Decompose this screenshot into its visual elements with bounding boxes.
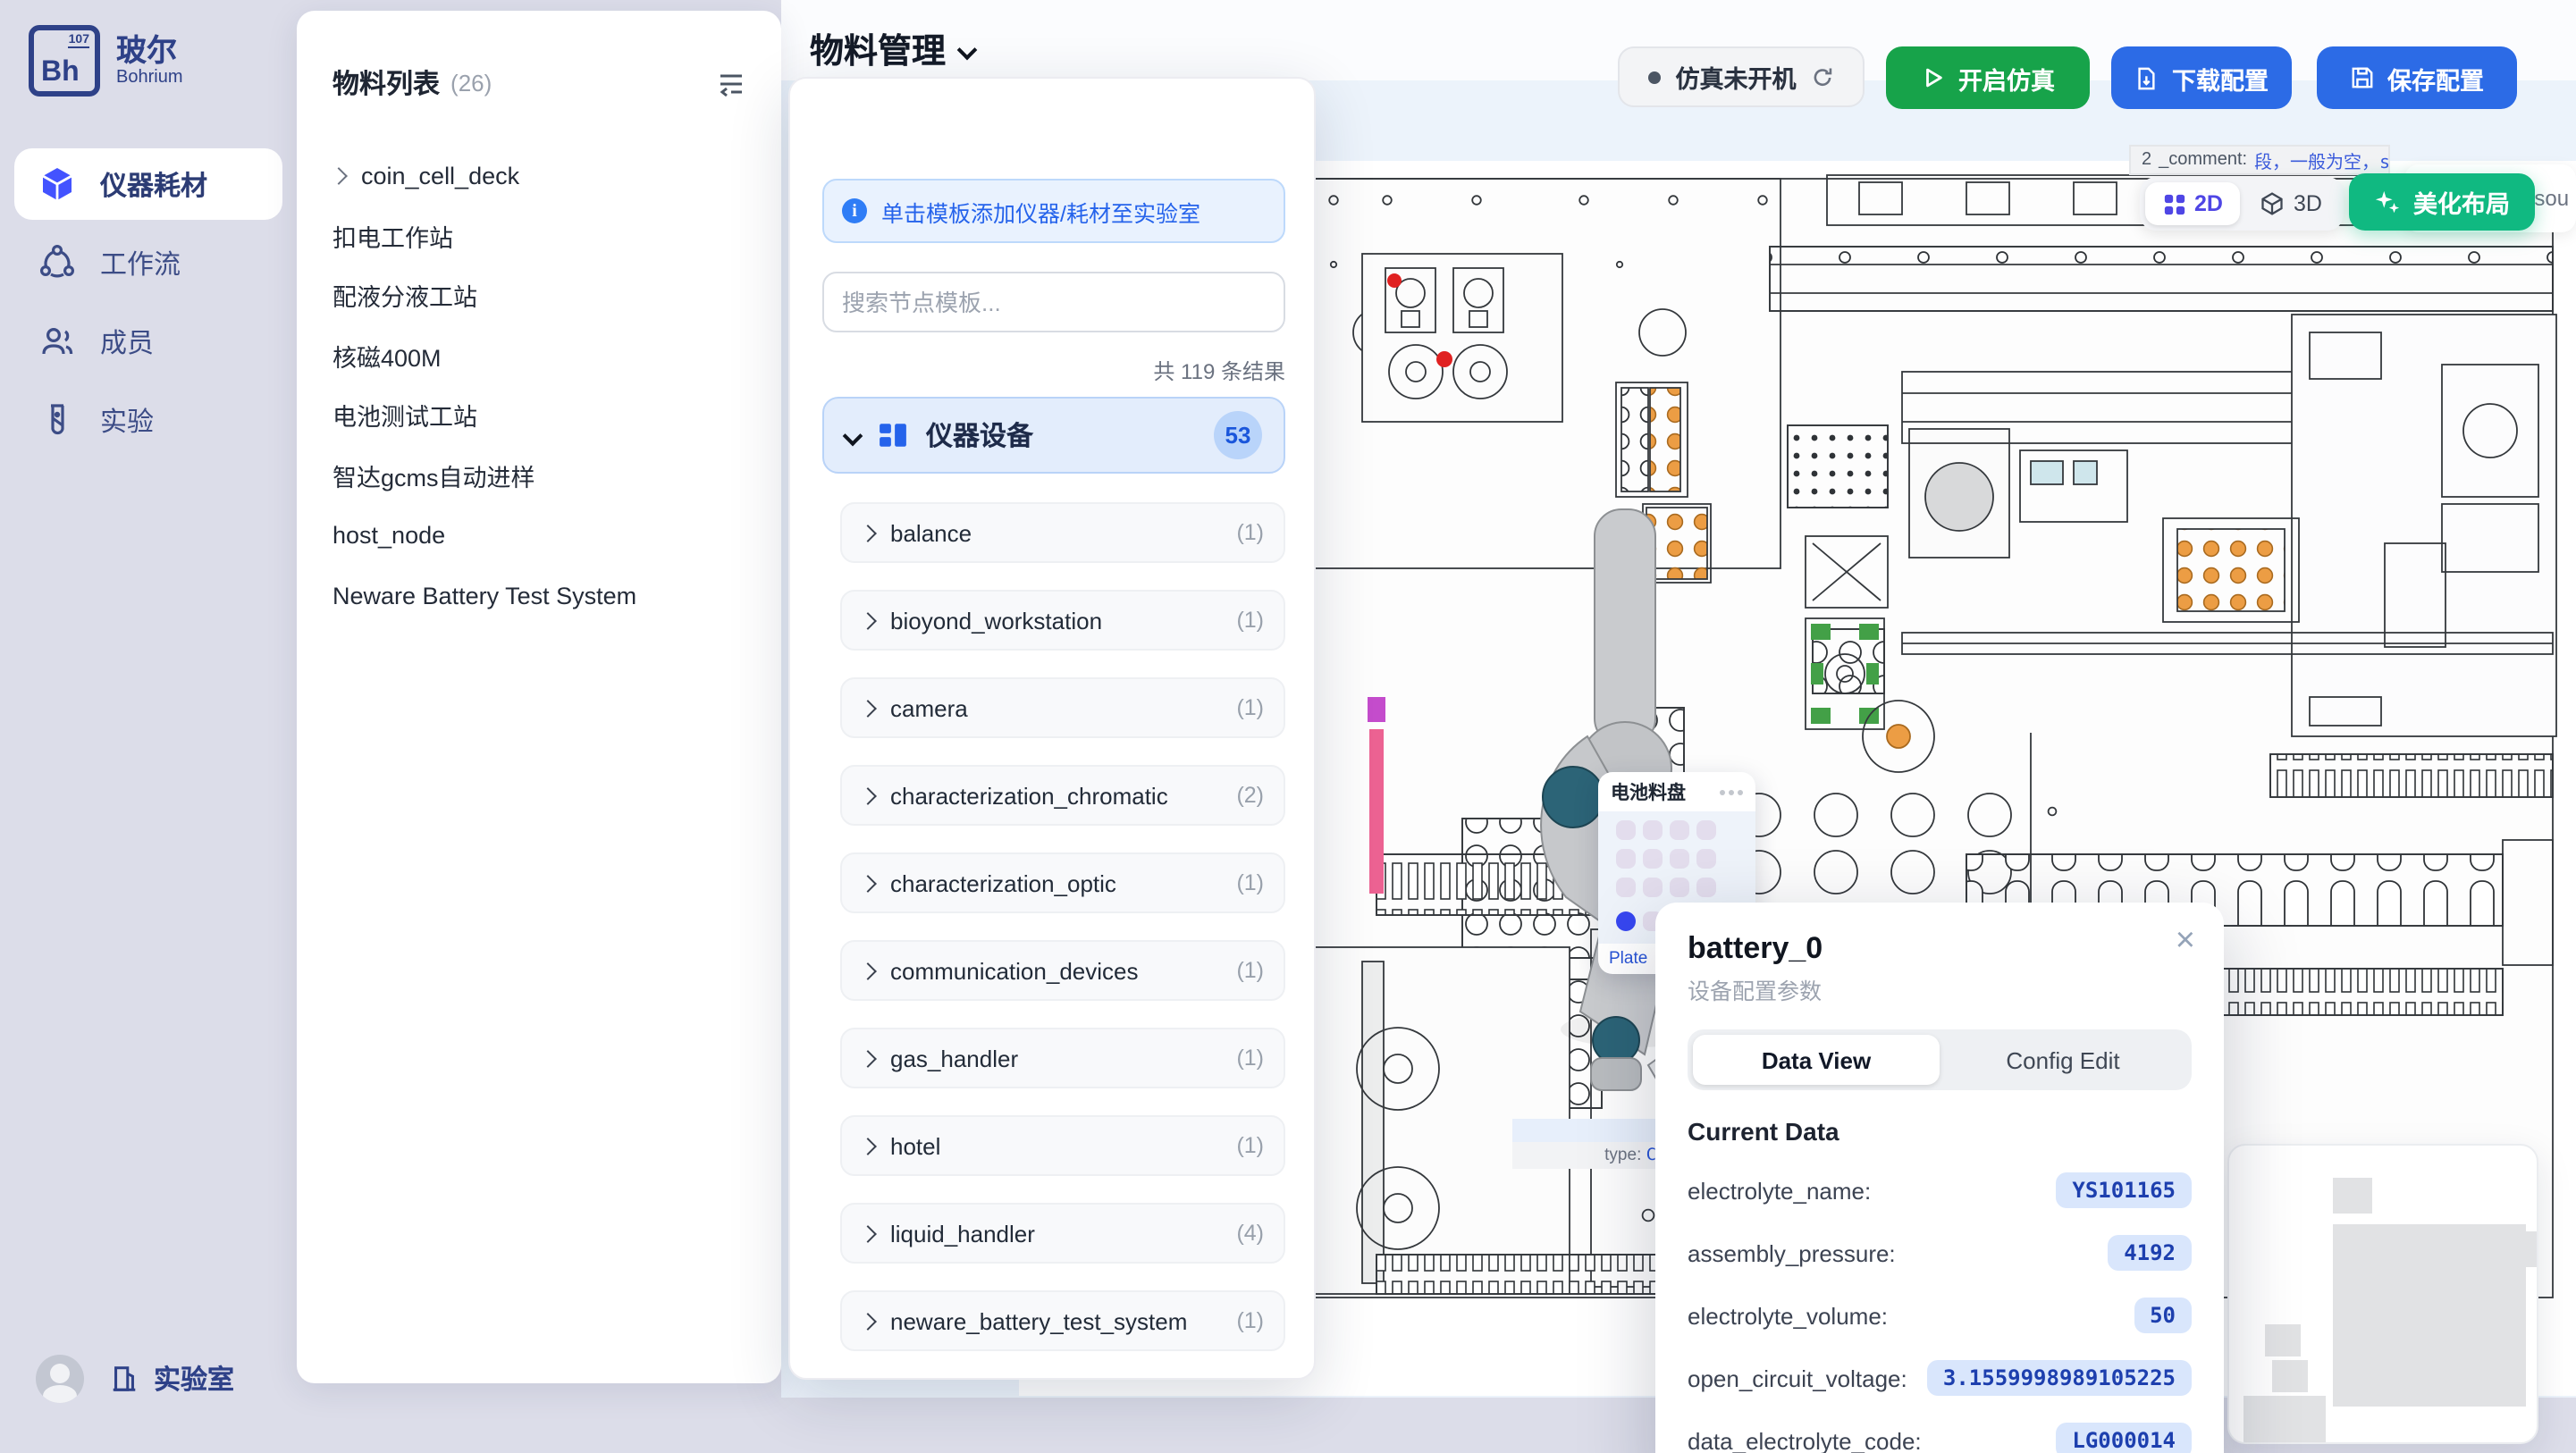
view-mode-toggle: 2D 3D xyxy=(2140,177,2344,231)
result-count: 共 119 条结果 xyxy=(822,356,1285,386)
chevron-down-icon[interactable] xyxy=(957,39,978,60)
hint-banner: i 单击模板添加仪器/耗材至实验室 xyxy=(822,179,1285,243)
collapse-list-icon[interactable] xyxy=(717,69,745,97)
download-config-label: 下载配置 xyxy=(2172,60,2269,96)
current-data-heading: Current Data xyxy=(1688,1117,2192,1146)
data-row-value: LG000014 xyxy=(2056,1423,2192,1453)
chevron-right-icon xyxy=(859,611,877,629)
sidebar-item-workflow[interactable]: 工作流 xyxy=(14,227,282,298)
sidebar-item-experiments[interactable]: 实验 xyxy=(14,384,282,456)
tray-slot[interactable] xyxy=(1616,849,1636,869)
more-icon[interactable] xyxy=(1720,789,1743,794)
template-item-count: (1) xyxy=(1236,1133,1264,1158)
data-row-label: open_circuit_voltage: xyxy=(1688,1365,1907,1391)
data-row-label: electrolyte_volume: xyxy=(1688,1302,1888,1329)
material-item[interactable]: 智达gcms自动进样 xyxy=(333,454,744,497)
template-item-label: characterization_optic xyxy=(890,869,1220,896)
grid-2d-icon xyxy=(2162,192,2185,215)
template-item-count: (2) xyxy=(1236,783,1264,808)
material-list-panel: 物料列表 (26) coin_cell_deck 扣电工作站 配液分液工站 核磁… xyxy=(297,11,781,1383)
type-label: type: xyxy=(1604,1146,1646,1165)
sidebar-item-label: 工作流 xyxy=(100,244,181,281)
toggle-2d-label: 2D xyxy=(2194,191,2223,216)
template-item-characterization-chromatic[interactable]: characterization_chromatic (2) xyxy=(840,765,1285,826)
tray-slot[interactable] xyxy=(1643,878,1663,897)
template-item-label: characterization_chromatic xyxy=(890,782,1220,809)
template-item-label: communication_devices xyxy=(890,957,1220,984)
data-row-value: YS101165 xyxy=(2056,1172,2192,1208)
material-item-coin-cell-deck[interactable]: coin_cell_deck xyxy=(333,154,744,197)
tab-config-edit[interactable]: Config Edit xyxy=(1940,1035,2186,1085)
tray-slot[interactable] xyxy=(1696,820,1716,840)
tray-slot[interactable] xyxy=(1616,878,1636,897)
category-count-badge: 53 xyxy=(1214,411,1262,459)
device-config-popup: battery_0 设备配置参数 × Data View Config Edit… xyxy=(1655,903,2224,1453)
comment-value: 段，一般为空，stat xyxy=(2254,147,2390,173)
material-list-title: 物料列表 xyxy=(333,64,440,102)
template-item-hotel[interactable]: hotel (1) xyxy=(840,1115,1285,1176)
template-item-balance[interactable]: balance (1) xyxy=(840,502,1285,563)
toggle-2d[interactable]: 2D xyxy=(2145,182,2240,225)
template-item-liquid-handler[interactable]: liquid_handler (4) xyxy=(840,1203,1285,1264)
template-item-label: balance xyxy=(890,519,1220,546)
data-row: assembly_pressure: 4192 xyxy=(1688,1235,2192,1271)
material-item-label: 核磁400M xyxy=(333,338,442,374)
search-input[interactable] xyxy=(822,272,1285,332)
screen: 2 _comment: 段，一般为空，stat 法此固定 esou 2D 3D … xyxy=(0,0,2576,1453)
sidebar-item-label: 仪器耗材 xyxy=(100,165,207,203)
material-item[interactable]: 电池测试工站 xyxy=(333,393,744,436)
download-file-icon xyxy=(2134,65,2158,90)
chevron-right-icon xyxy=(330,166,348,184)
tray-slot[interactable] xyxy=(1696,878,1716,897)
tray-slot[interactable] xyxy=(1670,820,1689,840)
tray-slot[interactable] xyxy=(1643,849,1663,869)
material-item[interactable]: Neware Battery Test System xyxy=(333,574,744,617)
close-icon[interactable]: × xyxy=(2176,924,2195,958)
save-config-button[interactable]: 保存配置 xyxy=(2317,46,2517,109)
save-config-label: 保存配置 xyxy=(2387,60,2484,96)
template-item-communication-devices[interactable]: communication_devices (1) xyxy=(840,940,1285,1001)
template-item-count: (1) xyxy=(1236,608,1264,633)
chevron-right-icon xyxy=(859,524,877,542)
material-item-label: 配液分液工站 xyxy=(333,277,477,313)
material-list-count: (26) xyxy=(450,70,492,97)
data-row: open_circuit_voltage: 3.1559998989105225 xyxy=(1688,1360,2192,1396)
sparkles-icon xyxy=(2374,189,2401,215)
comment-tooltip: 2 _comment: 段，一般为空，stat xyxy=(2129,145,2390,175)
material-item[interactable]: host_node xyxy=(333,513,744,556)
hint-banner-text: 单击模板添加仪器/耗材至实验室 xyxy=(881,194,1200,228)
lab-label: 实验室 xyxy=(154,1360,234,1398)
sidebar-item-label: 成员 xyxy=(100,323,154,360)
template-item-label: neware_battery_test_system xyxy=(890,1307,1220,1334)
sim-status-badge[interactable]: 仿真未开机 xyxy=(1618,46,1865,107)
material-item-label: 扣电工作站 xyxy=(333,218,453,254)
template-item-camera[interactable]: camera (1) xyxy=(840,677,1285,738)
data-row-label: electrolyte_name: xyxy=(1688,1177,1871,1204)
tray-slot[interactable] xyxy=(1670,878,1689,897)
chevron-right-icon xyxy=(859,786,877,804)
toggle-3d-label: 3D xyxy=(2294,191,2322,216)
template-item-bioyond-workstation[interactable]: bioyond_workstation (1) xyxy=(840,590,1285,651)
sidebar-item-label: 实验 xyxy=(100,401,154,439)
device-subtitle: 设备配置参数 xyxy=(1688,972,2192,1006)
popup-tabs: Data View Config Edit xyxy=(1688,1029,2192,1090)
sim-status-label: 仿真未开机 xyxy=(1676,59,1797,95)
template-item-label: bioyond_workstation xyxy=(890,607,1220,634)
template-item-label: gas_handler xyxy=(890,1045,1220,1071)
template-library-panel: i 单击模板添加仪器/耗材至实验室 共 119 条结果 仪器设备 53 bala… xyxy=(788,77,1316,1380)
data-row-label: assembly_pressure: xyxy=(1688,1239,1896,1266)
brand-logo: 107 Bh 玻尔 Bohrium xyxy=(29,25,183,97)
chevron-right-icon xyxy=(859,1312,877,1330)
template-item-count: (4) xyxy=(1236,1221,1264,1246)
chevron-right-icon xyxy=(859,1049,877,1067)
chevron-right-icon xyxy=(859,699,877,717)
material-item[interactable]: 配液分液工站 xyxy=(333,273,744,316)
beautify-layout-label: 美化布局 xyxy=(2413,184,2510,220)
data-row: data_electrolyte_code: LG000014 xyxy=(1688,1423,2192,1453)
status-dot-icon xyxy=(1649,71,1662,83)
chevron-right-icon xyxy=(859,1224,877,1242)
save-icon xyxy=(2350,66,2373,89)
template-item-count: (1) xyxy=(1236,1046,1264,1071)
chevron-right-icon xyxy=(859,1137,877,1155)
template-item-count: (1) xyxy=(1236,695,1264,720)
device-name: battery_0 xyxy=(1688,931,2192,967)
material-item-label: 智达gcms自动进样 xyxy=(333,458,535,493)
material-item[interactable]: 扣电工作站 xyxy=(333,214,744,257)
user-avatar[interactable] xyxy=(36,1355,84,1403)
sidebar-item-instruments[interactable]: 仪器耗材 xyxy=(14,148,282,220)
cube-icon xyxy=(39,166,75,202)
category-label: 仪器设备 xyxy=(926,416,1196,454)
refresh-icon[interactable] xyxy=(1811,65,1834,88)
category-grid-icon xyxy=(878,420,908,450)
play-icon xyxy=(1921,66,1944,89)
template-item-label: hotel xyxy=(890,1132,1220,1159)
tab-data-view[interactable]: Data View xyxy=(1693,1035,1940,1085)
material-item-label: Neware Battery Test System xyxy=(333,582,636,609)
data-row-value: 50 xyxy=(2134,1298,2192,1333)
tray-slot[interactable] xyxy=(1643,820,1663,840)
data-row-value: 4192 xyxy=(2108,1235,2192,1271)
battery-tray-title: 电池料盘 xyxy=(1611,778,1686,805)
download-config-button[interactable]: 下载配置 xyxy=(2111,46,2292,109)
bohrium-logo-icon: 107 Bh xyxy=(29,25,100,97)
building-icon xyxy=(109,1364,139,1394)
logo-element-symbol: Bh xyxy=(41,57,80,89)
template-item-count: (1) xyxy=(1236,958,1264,983)
test-tube-icon xyxy=(39,402,75,438)
logo-element-number: 107 xyxy=(69,34,89,48)
template-item-gas-handler[interactable]: gas_handler (1) xyxy=(840,1028,1285,1088)
brand-name-zh: 玻尔 xyxy=(116,35,183,67)
material-item-label: coin_cell_deck xyxy=(361,162,519,189)
category-instruments[interactable]: 仪器设备 53 xyxy=(822,397,1285,474)
brand-name-en: Bohrium xyxy=(116,67,183,87)
material-item-label: host_node xyxy=(333,521,445,548)
lab-switcher[interactable]: 实验室 xyxy=(109,1360,234,1398)
comment-prefix: 2 xyxy=(2142,150,2151,170)
data-row: electrolyte_name: YS101165 xyxy=(1688,1172,2192,1208)
template-item-count: (1) xyxy=(1236,870,1264,895)
template-item-count: (1) xyxy=(1236,520,1264,545)
info-icon: i xyxy=(842,198,867,223)
beautify-layout-button[interactable]: 美化布局 xyxy=(2349,173,2535,231)
comment-key: _comment: xyxy=(2159,150,2247,170)
template-item-count: (1) xyxy=(1236,1308,1264,1333)
tray-slot-selected[interactable] xyxy=(1616,911,1636,931)
toggle-3d[interactable]: 3D xyxy=(2243,182,2338,225)
chevron-right-icon xyxy=(859,962,877,979)
chevron-right-icon xyxy=(859,874,877,892)
material-item-label: 电池测试工站 xyxy=(333,397,477,433)
app-window: 2 _comment: 段，一般为空，stat 法此固定 esou 2D 3D … xyxy=(0,0,2576,1453)
template-item-characterization-optic[interactable]: characterization_optic (1) xyxy=(840,852,1285,913)
material-item[interactable]: 核磁400M xyxy=(333,334,744,377)
data-row: electrolyte_volume: 50 xyxy=(1688,1298,2192,1333)
members-icon xyxy=(39,323,75,359)
sidebar: 107 Bh 玻尔 Bohrium 仪器耗材 工作流 xyxy=(0,0,297,1453)
template-item-label: camera xyxy=(890,694,1220,721)
data-row-label: data_electrolyte_code: xyxy=(1688,1427,1922,1453)
workflow-icon xyxy=(39,245,75,281)
minimap[interactable] xyxy=(2227,1144,2538,1444)
start-simulation-label: 开启仿真 xyxy=(1958,60,2055,96)
tray-slot[interactable] xyxy=(1670,849,1689,869)
start-simulation-button[interactable]: 开启仿真 xyxy=(1886,46,2090,109)
sidebar-item-members[interactable]: 成员 xyxy=(14,306,282,377)
template-item-label: liquid_handler xyxy=(890,1220,1220,1247)
template-item-neware-battery-test-system[interactable]: neware_battery_test_system (1) xyxy=(840,1290,1285,1351)
page-title: 物料管理 xyxy=(810,25,946,73)
tray-slot[interactable] xyxy=(1696,849,1716,869)
chevron-down-icon xyxy=(843,425,863,446)
tray-slot[interactable] xyxy=(1616,820,1636,840)
cube-3d-icon xyxy=(2260,191,2285,216)
data-row-value: 3.1559998989105225 xyxy=(1927,1360,2192,1396)
